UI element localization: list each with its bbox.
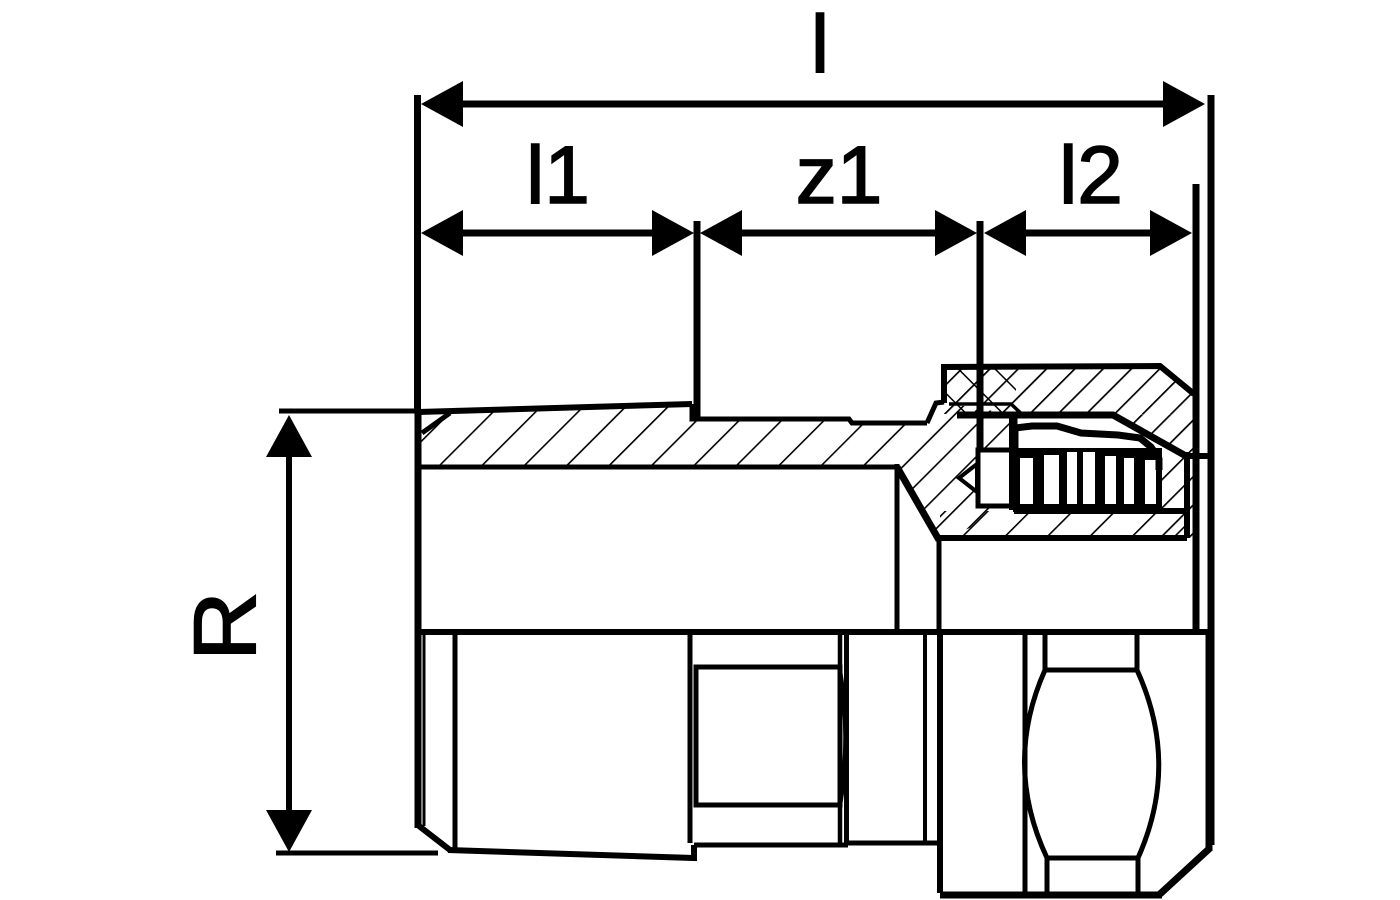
svg-text:z1: z1 <box>796 130 883 221</box>
svg-text:l2: l2 <box>1059 130 1123 221</box>
svg-text:l1: l1 <box>526 130 590 221</box>
svg-text:l: l <box>811 0 829 90</box>
svg-text:R: R <box>175 591 274 661</box>
